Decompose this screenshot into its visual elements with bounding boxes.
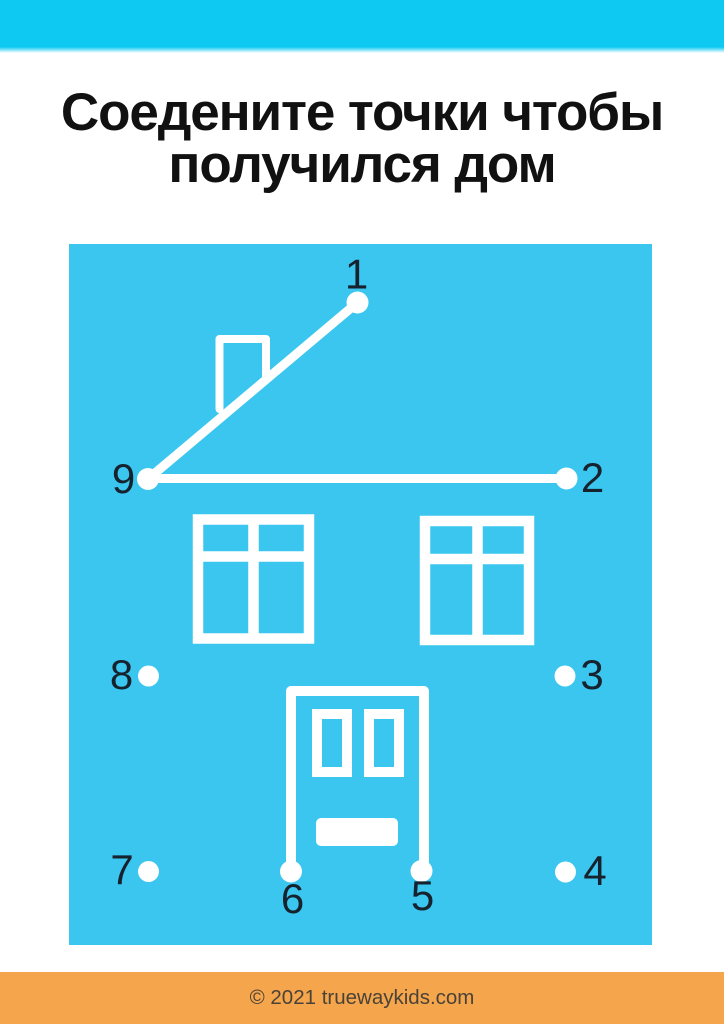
- svg-text:2: 2: [581, 454, 604, 501]
- svg-text:8: 8: [110, 651, 133, 698]
- svg-text:4: 4: [583, 847, 606, 894]
- svg-text:6: 6: [281, 875, 304, 922]
- svg-text:7: 7: [110, 846, 133, 893]
- svg-text:9: 9: [112, 455, 135, 502]
- svg-text:5: 5: [411, 872, 434, 919]
- svg-text:3: 3: [580, 651, 603, 698]
- svg-text:1: 1: [345, 251, 368, 298]
